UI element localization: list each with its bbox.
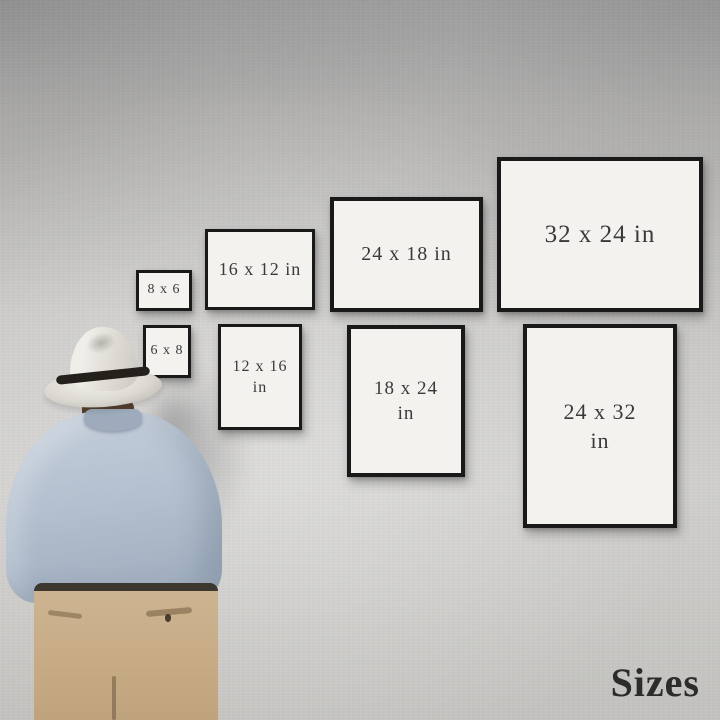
size-label: 18 x 24in xyxy=(374,376,438,426)
person-shirt xyxy=(6,411,222,603)
person-trousers xyxy=(34,583,218,720)
shirt-collar xyxy=(84,409,142,431)
size-frame-24x18: 24 x 18 in xyxy=(330,197,483,312)
size-label: 24 x 18 in xyxy=(361,241,452,267)
size-frame-16x12: 16 x 12 in xyxy=(205,229,315,310)
size-frame-8x6: 8 x 6 xyxy=(136,270,192,311)
size-label: 16 x 12 in xyxy=(219,258,302,282)
size-frame-24x32: 24 x 32in xyxy=(523,324,677,528)
size-label: 24 x 32in xyxy=(564,397,637,455)
size-frame-32x24: 32 x 24 in xyxy=(497,157,703,312)
size-label: 12 x 16in xyxy=(233,356,288,398)
size-label: 8 x 6 xyxy=(148,281,181,299)
pocket-button xyxy=(165,614,171,622)
size-frame-18x24: 18 x 24in xyxy=(347,325,465,477)
size-label: 32 x 24 in xyxy=(545,218,656,251)
sizes-caption: Sizes xyxy=(611,659,700,706)
person-viewer xyxy=(0,325,232,720)
gallery-wall-scene: 8 x 6 16 x 12 in 24 x 18 in 32 x 24 in 6… xyxy=(0,0,720,720)
